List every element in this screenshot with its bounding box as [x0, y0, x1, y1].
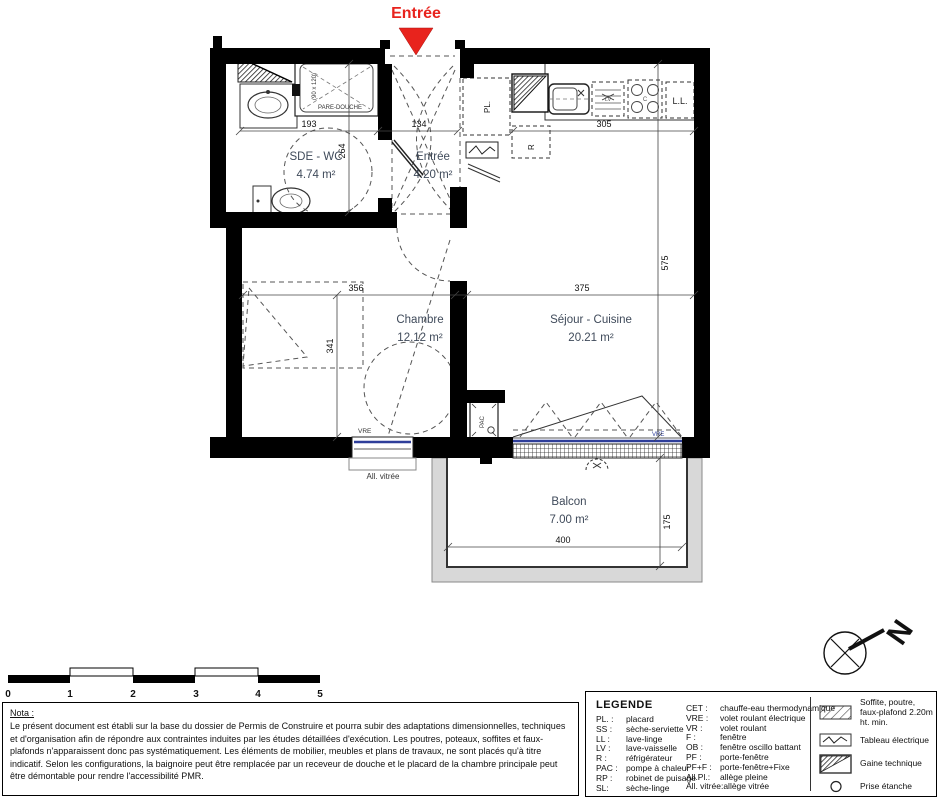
- technical-duct-kitchen: [512, 74, 548, 112]
- heat-pump-unit: PAC: [470, 402, 498, 438]
- entry-title: Entrée: [391, 5, 441, 22]
- nota-body: Le présent document est établi sur la ba…: [10, 720, 571, 782]
- dim-375: 375: [574, 283, 589, 293]
- dim-193: 193: [301, 119, 316, 129]
- scale-tick-4: 4: [255, 689, 261, 700]
- toilet: [253, 186, 310, 216]
- north-label: N: [880, 614, 919, 651]
- scale-tick-5: 5: [317, 689, 323, 700]
- north-arrow: N: [824, 614, 920, 674]
- legend-column-abbreviations-2: CET :chauffe-eau thermodynamique VRE :vo…: [686, 704, 835, 792]
- shower-screen-label: PARE-DOUCHE: [318, 105, 362, 111]
- bedroom-window: VRE All. vitrée: [349, 428, 416, 481]
- legend-symbols-column: Soffite, poutre, faux-plafond 2.20m ht. …: [818, 698, 934, 800]
- soffit-hatch-icon: [818, 705, 854, 721]
- cooktop-label: C: [643, 97, 648, 103]
- room-balcon-area: 7.00 m²: [550, 514, 589, 526]
- scale-tick-3: 3: [193, 689, 199, 700]
- dim-175: 175: [662, 514, 672, 529]
- bedroom-door-swing: [397, 228, 450, 281]
- floor-plan-drawing: PARE-DOUCHE (90 x 120) LV: [0, 0, 939, 700]
- dim-134: 134: [411, 119, 426, 129]
- room-sejour-area: 20.21 m²: [568, 332, 614, 344]
- dim-575: 575: [660, 255, 670, 270]
- entry-door-swing: [390, 56, 460, 214]
- room-sde-wc-name: SDE - WC: [289, 151, 342, 163]
- legend-column-abbreviations-1: PL. :placard SS :sèche-serviette LL :lav…: [596, 715, 696, 793]
- heat-pump-label: PAC: [480, 415, 486, 428]
- shower-size-label: (90 x 120): [312, 73, 318, 100]
- room-sde-wc-area: 4.74 m²: [297, 169, 336, 181]
- dishwasher: LV: [592, 82, 624, 116]
- legend-symbol-item: Gaine technique: [818, 754, 934, 774]
- technical-duct-icon: [818, 754, 854, 774]
- balcony-door-panels: [513, 396, 682, 437]
- sealed-socket-icon: [818, 780, 854, 793]
- living-balcony-door: VRE: [513, 432, 682, 458]
- entry-closet: PL.: [463, 78, 510, 135]
- legend-symbol-item: Tableau électrique: [818, 733, 934, 748]
- washbasin: [240, 84, 297, 128]
- entry-arrow-icon: [399, 28, 433, 55]
- room-balcon-name: Balcon: [551, 496, 586, 508]
- refrigerator-label: R: [527, 144, 536, 150]
- kitchen-sink: [549, 84, 589, 114]
- nota-box: Nota : Le présent document est établi su…: [2, 702, 579, 796]
- scale-tick-2: 2: [130, 689, 136, 700]
- legend-box: LEGENDE PL. :placard SS :sèche-serviette…: [585, 691, 937, 797]
- dim-356: 356: [348, 283, 363, 293]
- closet-label: PL.: [483, 101, 492, 113]
- legend-item: All. vitrée:allège vitrée: [686, 782, 835, 792]
- legend-symbol-item: Soffite, poutre, faux-plafond 2.20m ht. …: [818, 698, 934, 727]
- scale-bar: 0 1 2 3 4 5: [5, 668, 323, 700]
- dim-341: 341: [325, 338, 335, 353]
- dishwasher-label: LV: [605, 97, 612, 103]
- nota-title: Nota :: [10, 707, 571, 719]
- dim-305: 305: [596, 119, 611, 129]
- legend-title: LEGENDE: [596, 699, 653, 711]
- scale-tick-0: 0: [5, 689, 11, 700]
- dim-400: 400: [555, 535, 570, 545]
- room-chambre-area: 12.12 m²: [397, 332, 443, 344]
- legend-symbol-item: Prise étanche: [818, 780, 934, 793]
- entry-marker: Entrée: [391, 5, 441, 55]
- cooktop: C: [628, 80, 662, 118]
- glazed-sill-label: All. vitrée: [367, 472, 400, 481]
- electrical-panel: [466, 142, 500, 182]
- shower: PARE-DOUCHE (90 x 120): [292, 60, 378, 116]
- room-entree-area: 4.20 m²: [414, 169, 453, 181]
- room-chambre-name: Chambre: [396, 314, 443, 326]
- washing-machine-label: L.L.: [672, 96, 687, 106]
- washing-machine: L.L.: [666, 82, 694, 118]
- room-entree-name: Entrée: [416, 151, 450, 163]
- scale-tick-1: 1: [67, 689, 73, 700]
- electrical-panel-icon: [818, 733, 854, 748]
- legend-item: VR :volet roulant: [686, 724, 835, 734]
- room-sejour-name: Séjour - Cuisine: [550, 314, 632, 326]
- bedroom-window-vre-label: VRE: [358, 428, 372, 435]
- legend-divider: [810, 697, 811, 791]
- accessibility-circle-bedroom: [364, 342, 456, 434]
- floor-plan-page: PARE-DOUCHE (90 x 120) LV: [0, 0, 939, 800]
- legend-item: SL:sèche-linge: [596, 784, 696, 794]
